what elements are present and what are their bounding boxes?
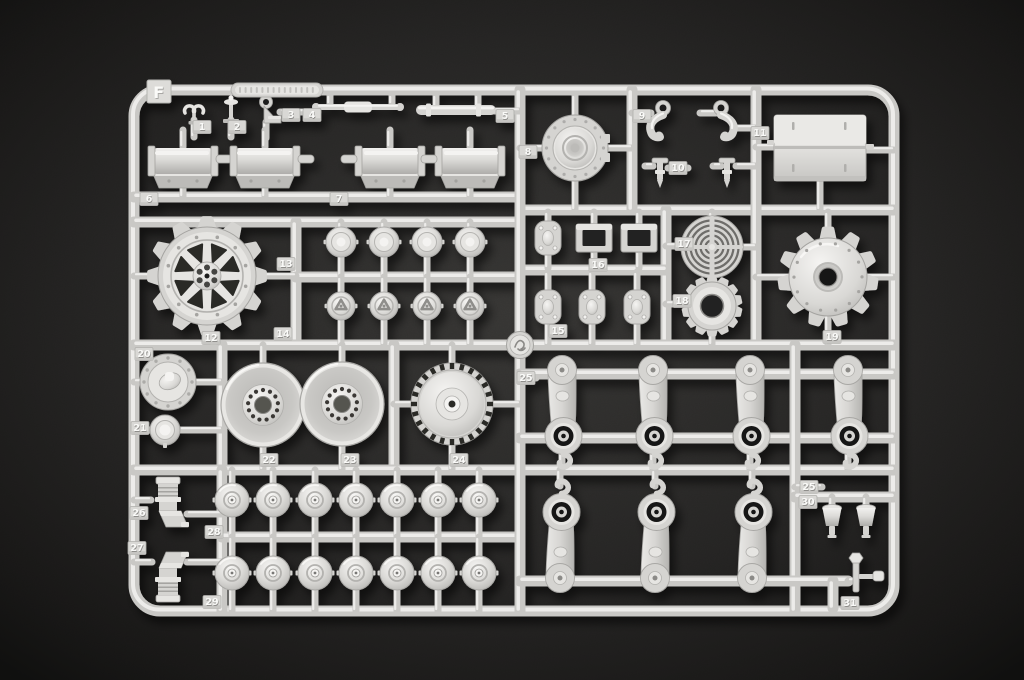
svg-text:27: 27 bbox=[130, 543, 143, 554]
svg-text:15: 15 bbox=[551, 326, 564, 337]
svg-text:13: 13 bbox=[279, 259, 292, 270]
svg-text:28: 28 bbox=[207, 527, 221, 538]
sprue-letter-tab: F F bbox=[147, 80, 171, 103]
svg-text:20: 20 bbox=[137, 349, 151, 360]
part-5-rod bbox=[416, 104, 496, 117]
part-number-tag-11: 1111 bbox=[751, 127, 769, 140]
part-number-tag-14: 1414 bbox=[274, 328, 292, 341]
part-number-tag-29: 2929 bbox=[203, 596, 221, 609]
svg-text:4: 4 bbox=[309, 110, 316, 121]
part-24-notched-wheel bbox=[411, 363, 493, 445]
svg-text:5: 5 bbox=[502, 111, 509, 122]
svg-text:26: 26 bbox=[132, 508, 146, 519]
part-number-tag-6: 66 bbox=[140, 193, 158, 206]
part-23-dished-wheel bbox=[300, 362, 384, 446]
part-number-tag-20: 2020 bbox=[135, 348, 153, 361]
svg-text:12: 12 bbox=[204, 333, 217, 344]
part-number-tag-7: 77 bbox=[330, 193, 348, 206]
svg-text:2: 2 bbox=[234, 122, 241, 133]
part-number-tag-24: 2424 bbox=[450, 454, 468, 467]
part-15-mount-pad bbox=[535, 221, 561, 255]
svg-text:7: 7 bbox=[336, 194, 343, 205]
part-number-tag-10: 1010 bbox=[669, 162, 687, 175]
part-20-flanged-hatch bbox=[140, 354, 196, 410]
part-number-tag-25: 2525 bbox=[800, 481, 818, 494]
part-22-dished-wheel bbox=[221, 363, 305, 447]
part-number-tag-18: 1818 bbox=[673, 295, 691, 308]
part-16-frame-loop bbox=[621, 224, 657, 252]
svg-text:8: 8 bbox=[525, 147, 532, 158]
part-number-tag-15: 1515 bbox=[549, 325, 567, 338]
runner-medallion bbox=[507, 332, 534, 359]
svg-text:9: 9 bbox=[639, 111, 646, 122]
part-15-mount-pad bbox=[535, 290, 561, 324]
svg-text:11: 11 bbox=[753, 128, 766, 139]
part-number-tag-25: 2525 bbox=[517, 372, 535, 385]
part-number-tag-21: 2121 bbox=[131, 422, 149, 435]
svg-text:3: 3 bbox=[288, 110, 295, 121]
part-mount-plate bbox=[767, 115, 874, 181]
part-number-tag-2: 22 bbox=[228, 121, 246, 134]
part-number-tag-12: 1212 bbox=[202, 332, 220, 345]
part-number-tag-8: 88 bbox=[519, 146, 537, 159]
svg-text:10: 10 bbox=[671, 163, 685, 174]
part-number-tag-4: 44 bbox=[303, 109, 321, 122]
sprue-letter: F bbox=[153, 83, 164, 102]
svg-text:30: 30 bbox=[801, 497, 815, 508]
svg-text:14: 14 bbox=[276, 329, 290, 340]
part-number-tag-19: 1919 bbox=[823, 331, 841, 344]
part-number-tag-23: 2323 bbox=[341, 454, 359, 467]
svg-text:25: 25 bbox=[802, 482, 815, 493]
part-number-tag-9: 99 bbox=[633, 110, 651, 123]
svg-text:1: 1 bbox=[199, 122, 206, 133]
part-number-tag-22: 2222 bbox=[260, 454, 278, 467]
part-number-tag-3: 33 bbox=[282, 109, 300, 122]
sprue-photo: 1122334455667788991010111112121313141415… bbox=[0, 0, 1024, 680]
svg-text:19: 19 bbox=[825, 332, 838, 343]
svg-text:16: 16 bbox=[591, 260, 605, 271]
part-number-tag-16: 1616 bbox=[589, 259, 607, 272]
svg-text:18: 18 bbox=[675, 296, 689, 307]
svg-text:29: 29 bbox=[205, 597, 218, 608]
svg-text:6: 6 bbox=[146, 194, 153, 205]
svg-text:23: 23 bbox=[343, 455, 356, 466]
part-16-frame-loop bbox=[576, 224, 612, 252]
part-number-tag-13: 1313 bbox=[277, 258, 295, 271]
part-number-tag-5: 55 bbox=[496, 110, 514, 123]
svg-text:22: 22 bbox=[262, 455, 275, 466]
svg-text:21: 21 bbox=[133, 423, 146, 434]
part-number-tag-28: 2828 bbox=[205, 526, 223, 539]
part-number-tag-17: 1717 bbox=[675, 238, 693, 251]
svg-text:31: 31 bbox=[843, 598, 856, 609]
part-18-toothed-ring bbox=[683, 277, 741, 335]
part-15-mount-pad bbox=[579, 290, 605, 324]
molded-code-badge bbox=[231, 83, 323, 97]
part-number-tag-1: 11 bbox=[193, 121, 211, 134]
svg-text:17: 17 bbox=[677, 239, 690, 250]
part-number-tag-31: 3131 bbox=[841, 597, 859, 610]
svg-text:24: 24 bbox=[452, 455, 466, 466]
part-number-tag-27: 2727 bbox=[128, 542, 146, 555]
part-number-tag-30: 3030 bbox=[799, 496, 817, 509]
part-15-mount-pad bbox=[624, 290, 650, 324]
svg-text:25: 25 bbox=[519, 373, 532, 384]
photo-stage: 1122334455667788991010111112121313141415… bbox=[0, 0, 1024, 680]
part-number-tag-26: 2626 bbox=[130, 507, 148, 520]
